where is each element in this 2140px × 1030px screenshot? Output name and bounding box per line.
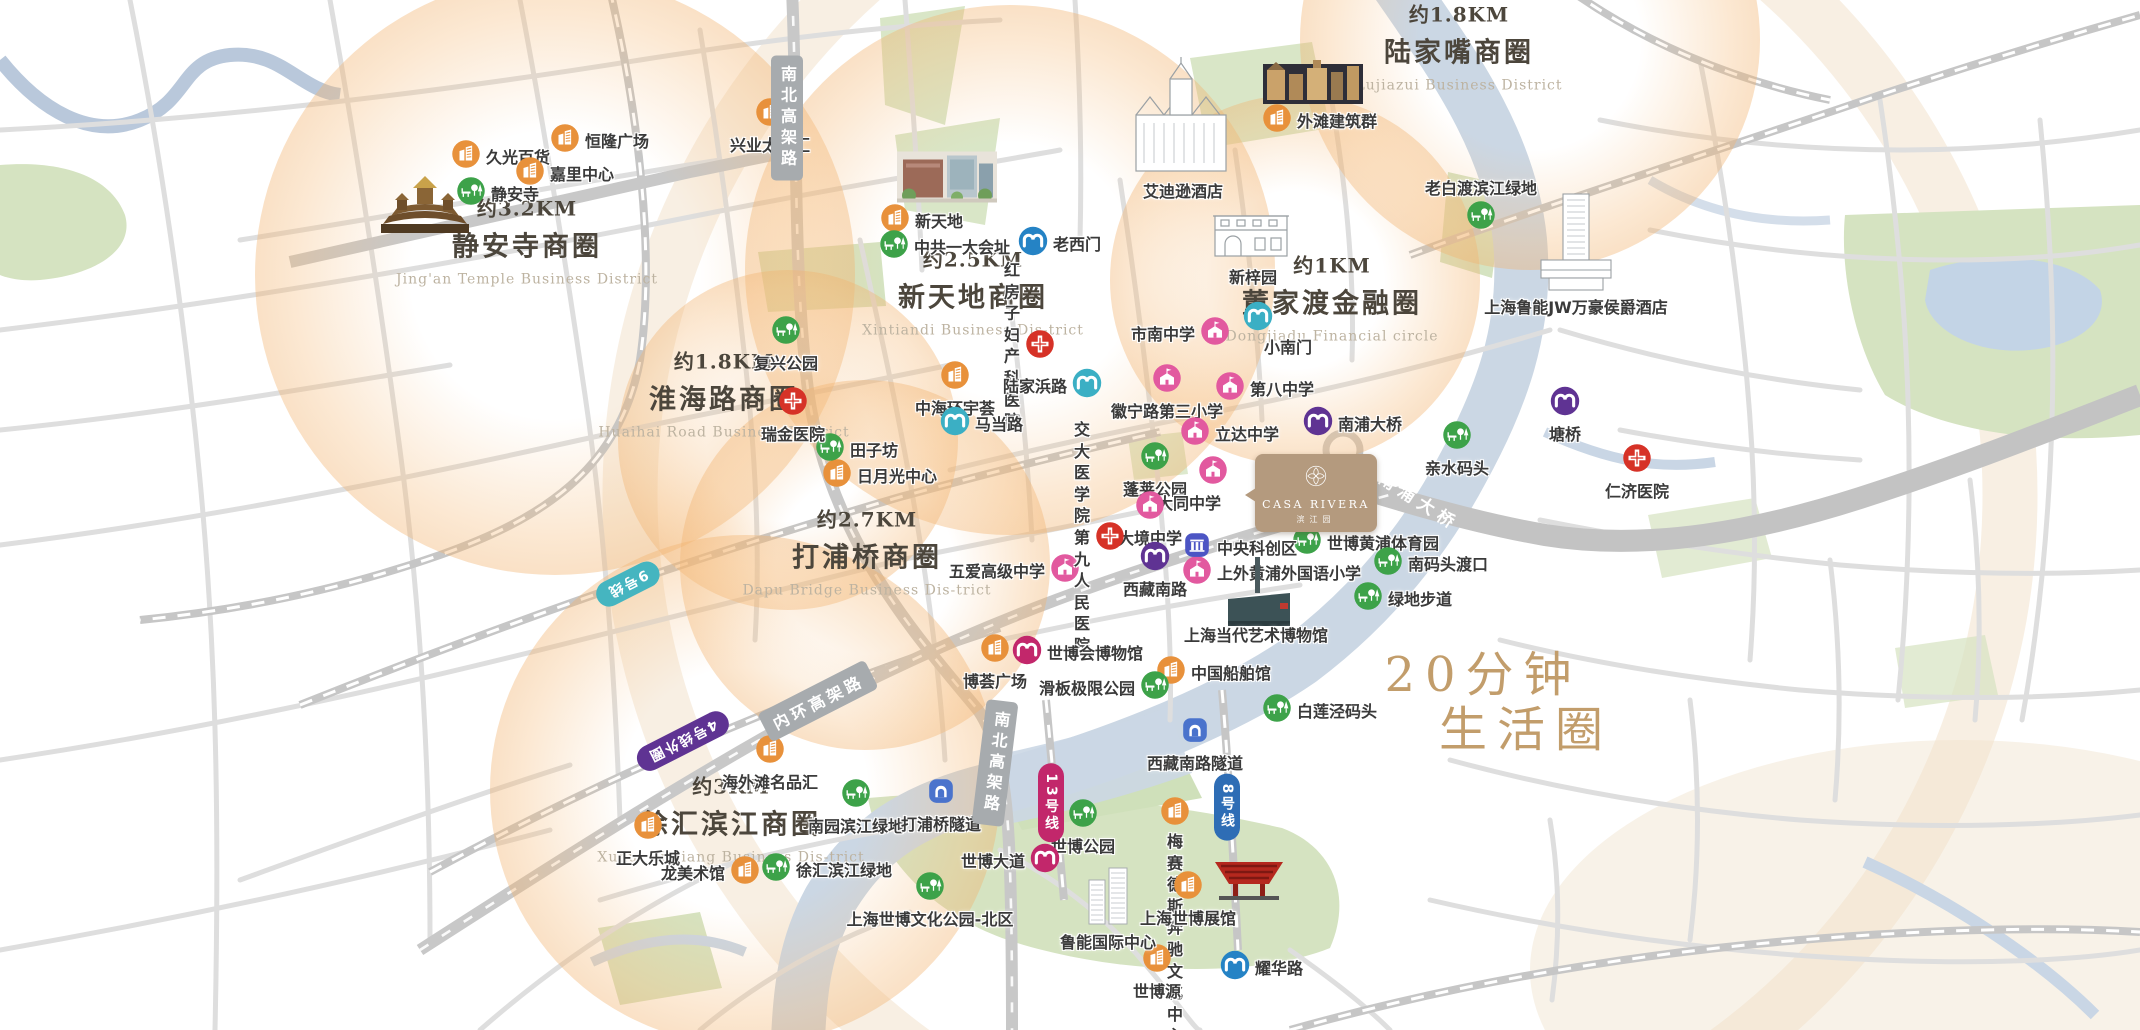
hospital-icon [1025, 329, 1055, 363]
district-name: 新天地商圈 [862, 276, 1084, 315]
metro-icon [940, 406, 971, 441]
poi-label: 第八中学 [1250, 376, 1314, 400]
poi-label: 立达中学 [1215, 421, 1279, 445]
park-icon [879, 229, 909, 263]
poi-label: 静安寺 [491, 181, 539, 205]
poi-label: 海外滩名品汇 [722, 769, 818, 793]
metro-icon [1243, 301, 1274, 336]
landmark-luneng-center [1087, 866, 1131, 934]
commercial-icon [633, 810, 663, 844]
poi-label: 南浦大桥 [1338, 411, 1402, 435]
landmark-label: 上海当代艺术博物馆 [1184, 622, 1328, 646]
poi-label: 瑞金医院 [761, 421, 825, 445]
map-canvas: 约3.2KM静安寺商圈Jing'an Temple Business Distr… [0, 0, 2140, 1030]
edition-hotel-sketch [1130, 57, 1232, 179]
luneng-center-sketch [1087, 866, 1131, 930]
poi-label: 日月光中心 [857, 463, 937, 487]
school-icon [1135, 490, 1165, 524]
poi-label: 老白渡滨江绿地 [1425, 175, 1537, 199]
commercial-icon [980, 633, 1010, 667]
school-icon [1198, 455, 1228, 489]
poi-label: 西藏南路隧道 [1147, 750, 1243, 774]
project-card: CASA RIVERA 滨江园 [1255, 454, 1377, 532]
landmark-label: 艾迪逊酒店 [1143, 178, 1223, 202]
poi-label: 滑板极限公园 [1039, 675, 1135, 699]
district-distance: 约1.8KM [1355, 0, 1562, 28]
landmark-jingan-temple [377, 174, 473, 240]
poi-label: 塘桥 [1549, 421, 1581, 445]
park-icon [1353, 581, 1383, 615]
commercial-icon [1173, 870, 1203, 904]
district-title-dapuqiao: 约2.7KM打浦桥商圈Dapu Bridge Business Dis-tric… [742, 504, 991, 599]
tunnel-icon [928, 778, 955, 809]
park-icon [1373, 546, 1403, 580]
jw-marriott-sketch [1537, 192, 1615, 294]
poi-label: 世博会博物馆 [1047, 640, 1143, 664]
poi-label: 博荟广场 [963, 668, 1027, 692]
bund-photo-illustration [1263, 58, 1363, 104]
poi-label: 老西门 [1053, 231, 1101, 255]
landmark-edition-hotel [1130, 57, 1232, 183]
slogan-line-2: 生活圈 [1439, 690, 1613, 760]
poi-label: 亲水码头 [1425, 455, 1489, 479]
poi-label: 小南门 [1264, 334, 1312, 358]
poi-label: 西藏南路 [1123, 576, 1187, 600]
metro-icon [1018, 226, 1049, 261]
poi-label: 龙美术馆 [661, 860, 725, 884]
poi-label: 交大医学院 第九人民医院 [1074, 419, 1090, 657]
xintiandi-photo-illustration [897, 146, 997, 203]
commercial-icon [1160, 796, 1190, 830]
poi-label: 上海世博文化公园-北区 [847, 906, 1014, 930]
poi-label: 徐汇滨江绿地 [796, 857, 892, 881]
poi-label: 中央科创区 [1217, 535, 1297, 559]
commercial-icon [1262, 103, 1292, 137]
park-icon [771, 315, 801, 349]
school-icon [1215, 371, 1245, 405]
tunnel-icon [1182, 717, 1209, 748]
jingan-temple-illustration [377, 174, 473, 236]
poi-label: 打浦桥隧道 [901, 811, 981, 835]
poi-label: 大同中学 [1157, 490, 1221, 514]
landmark-label: 鲁能国际中心 [1060, 929, 1156, 953]
poi-label: 南码头渡口 [1408, 551, 1488, 575]
school-icon [1180, 416, 1210, 450]
park-icon [761, 852, 791, 886]
park-icon [1262, 693, 1292, 727]
poi-label: 绿地步道 [1388, 586, 1452, 610]
china-art-palace-illustration [1205, 854, 1293, 902]
district-name: 陆家嘴商圈 [1355, 31, 1562, 70]
landmark-xinziyuan [1211, 202, 1291, 264]
metro-icon [1140, 541, 1171, 576]
xinziyuan-sketch [1211, 202, 1291, 260]
district-distance: 约2.7KM [742, 504, 991, 533]
project-logo-icon [1301, 461, 1331, 495]
park-icon [915, 871, 945, 905]
metro-icon [1012, 635, 1043, 670]
hospital-icon [1622, 443, 1652, 477]
district-title-lujiazui: 约1.8KM陆家嘴商圈Lujiazui Business District [1355, 0, 1562, 94]
road-name-badge: 南北高架路 [972, 699, 1019, 827]
poi-label: 世博源 [1133, 978, 1181, 1002]
map-markers-layer: 约3.2KM静安寺商圈Jing'an Temple Business Distr… [0, 0, 2140, 1030]
poi-label: 中共一大会址 [914, 234, 1010, 258]
poi-label: 中国船舶馆 [1191, 660, 1271, 684]
hospital-icon [1095, 521, 1125, 555]
poi-label: 红房子 妇产科医院 [1004, 260, 1020, 433]
commercial-icon [730, 855, 760, 889]
commercial-icon [451, 139, 481, 173]
metro-line-badge: 13号线 [1038, 763, 1064, 842]
road-name-badge: 内环高架路 [757, 660, 878, 743]
landmark-label: 新梓园 [1229, 264, 1277, 288]
park-icon [1140, 670, 1170, 704]
zone-icon [1184, 532, 1211, 563]
poi-label: 外滩建筑群 [1297, 108, 1377, 132]
poi-label: 南园滨江绿地 [808, 813, 904, 837]
metro-icon [1303, 406, 1334, 441]
park-icon [1442, 420, 1472, 454]
landmark-label: 上海鲁能JW万豪侯爵酒店 [1484, 294, 1668, 318]
landmark-xintiandi-mall [897, 146, 997, 207]
park-icon [1466, 200, 1496, 234]
metro-line-badge: 4号线外圈 [633, 707, 734, 775]
landmark-china-art-palace [1205, 854, 1293, 906]
project-name: CASA RIVERA [1262, 498, 1370, 511]
poi-label: 市南中学 [1131, 321, 1195, 345]
project-card-pointer [1245, 488, 1256, 502]
poi-label: 新天地 [915, 208, 963, 232]
park-icon [1140, 441, 1170, 475]
metro-icon [1072, 368, 1103, 403]
district-english-name: Dapu Bridge Business Dis-trict [742, 583, 991, 599]
commercial-icon [940, 360, 970, 394]
landmark-jw-marriott [1537, 192, 1615, 298]
school-icon [1200, 316, 1230, 350]
district-name: 淮海路商圈 [598, 378, 849, 417]
metro-icon [1550, 386, 1581, 421]
poi-label: 复兴公园 [754, 350, 818, 374]
metro-icon [1030, 843, 1061, 878]
district-english-name: Lujiazui Business District [1355, 78, 1562, 94]
district-english-name: Jing'an Temple Business District [396, 272, 658, 288]
poi-label: 陆家浜路 [1003, 373, 1067, 397]
poi-label: 世博大道 [961, 848, 1025, 872]
poi-label: 五爱高级中学 [949, 558, 1045, 582]
poi-label: 上海世博展馆 [1140, 905, 1236, 929]
school-icon [1152, 363, 1182, 397]
road-name-badge: 南北高架路 [771, 56, 803, 181]
poi-label: 仁济医院 [1605, 478, 1669, 502]
poi-label: 马当路 [975, 411, 1023, 435]
poi-label: 嘉里中心 [550, 161, 614, 185]
park-icon [1068, 798, 1098, 832]
metro-line-badge: 9号线 [592, 557, 664, 611]
poi-label: 白莲泾码头 [1297, 698, 1377, 722]
metro-line-badge: 8号线 [1214, 774, 1240, 841]
poi-label: 田子坊 [850, 437, 898, 461]
landmark-bund-buildings [1263, 58, 1363, 108]
commercial-icon [550, 123, 580, 157]
metro-icon [1220, 950, 1251, 985]
poi-label: 恒隆广场 [585, 128, 649, 152]
hospital-icon [778, 386, 808, 420]
park-icon [841, 778, 871, 812]
poi-label: 耀华路 [1255, 955, 1303, 979]
project-subtitle: 滨江园 [1297, 514, 1336, 525]
